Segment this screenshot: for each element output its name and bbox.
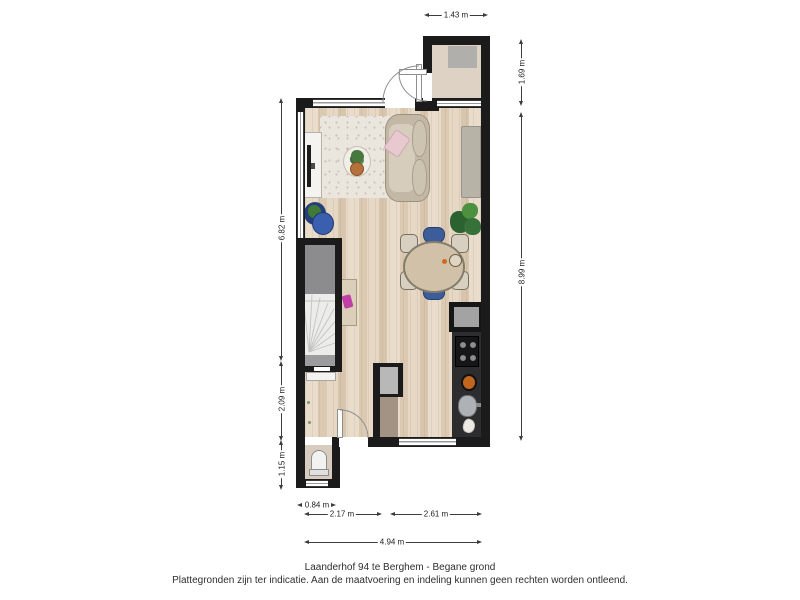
closet-wall-left [373, 363, 380, 441]
arrow-icon [519, 436, 523, 441]
arrow-icon [297, 503, 302, 507]
frontdoor-opening [339, 437, 368, 447]
arrow-icon [304, 512, 309, 516]
arrow-icon [424, 13, 429, 17]
stairs-treads [301, 294, 337, 355]
arrow-icon [519, 112, 523, 117]
arrow-icon [519, 39, 523, 44]
plant-leaf [462, 203, 478, 219]
dim-label-right-main: 8.99 m [518, 258, 527, 286]
kitchen-counter [452, 332, 481, 437]
dim-label-left-living: 6.82 m [278, 214, 287, 242]
hall-radiator [306, 372, 336, 381]
stairs-fan-lines [301, 294, 337, 355]
porch-door-leaf [399, 69, 427, 75]
caption-title: Laanderhof 94 te Berghem - Begane grond [0, 561, 800, 574]
porch-window [437, 100, 481, 107]
dim-label-bottom-left: 2.17 m [328, 510, 356, 519]
floorplan-page: 1.43 m 1.69 m 8.99 m 6.82 m 2.09 m 1.15 … [0, 0, 800, 600]
plant-leaf [464, 218, 481, 235]
sofa [385, 114, 430, 202]
arrow-icon [477, 540, 482, 544]
dim-label-top: 1.43 m [442, 11, 470, 20]
plant-pot [350, 162, 364, 176]
porch-doormat [448, 46, 477, 68]
toilet-tank [309, 469, 329, 476]
sofa-back-cushion [412, 159, 427, 196]
understairs-opening [314, 367, 330, 371]
stove [455, 336, 479, 367]
orange-dot [442, 259, 447, 264]
dim-label-left-hall: 2.09 m [278, 385, 287, 413]
arrow-icon [279, 440, 283, 445]
closet-wall-right [398, 363, 403, 397]
dim-label-left-toilet: 1.15 m [278, 450, 287, 478]
arrow-icon [390, 512, 395, 516]
dim-label-right-porch: 1.69 m [518, 58, 527, 86]
arrow-icon [519, 101, 523, 106]
toilet-bowl [311, 450, 327, 471]
toilet-window [306, 480, 328, 487]
kitchen-window [399, 438, 456, 446]
dim-label-bottom-total: 4.94 m [378, 538, 406, 547]
arrow-icon [279, 485, 283, 490]
tv-cabinet [304, 132, 322, 198]
arrow-icon [279, 98, 283, 103]
stairs-wall-right [335, 238, 342, 372]
arrow-icon [483, 13, 488, 17]
caption: Laanderhof 94 te Berghem - Begane grond … [0, 561, 800, 587]
hall-plant-speck [308, 421, 311, 424]
dim-label-bottom-right: 2.61 m [422, 510, 450, 519]
sink [458, 395, 477, 417]
main-wall-right [481, 98, 490, 447]
cooking-pot [461, 374, 477, 391]
fruit-bowl [449, 254, 462, 267]
stairs-landing [303, 355, 336, 366]
porch-door-opening [423, 73, 432, 101]
arrow-icon [477, 512, 482, 516]
dining-table [403, 241, 465, 293]
arrow-icon [331, 503, 336, 507]
backdoor-opening [385, 98, 415, 108]
tv-stand [311, 163, 315, 169]
arrow-icon [304, 540, 309, 544]
kitchen-appliance-block [449, 302, 484, 332]
sofa-back-cushion [412, 120, 427, 157]
coffee-table [343, 146, 371, 177]
arrow-icon [377, 512, 382, 516]
closet-lower [380, 397, 398, 437]
arrow-icon [279, 361, 283, 366]
living-window-top [313, 99, 385, 107]
caption-disclaimer: Plattegronden zijn ter indicatie. Aan de… [0, 574, 800, 587]
wall-cabinet [461, 126, 481, 198]
floor-plant [450, 203, 482, 237]
dish-item [461, 417, 477, 434]
closet-upper [380, 367, 398, 394]
pouf-blue [312, 212, 334, 235]
living-window-left [297, 112, 304, 238]
closet-wall-divider [379, 394, 403, 397]
hall-plant-speck [307, 401, 310, 404]
dim-label-bottom-toilet: 0.84 m [303, 501, 331, 510]
stairs-upper-dark [303, 245, 336, 294]
front-door-leaf [337, 409, 343, 438]
porch-wall-top [423, 36, 490, 45]
